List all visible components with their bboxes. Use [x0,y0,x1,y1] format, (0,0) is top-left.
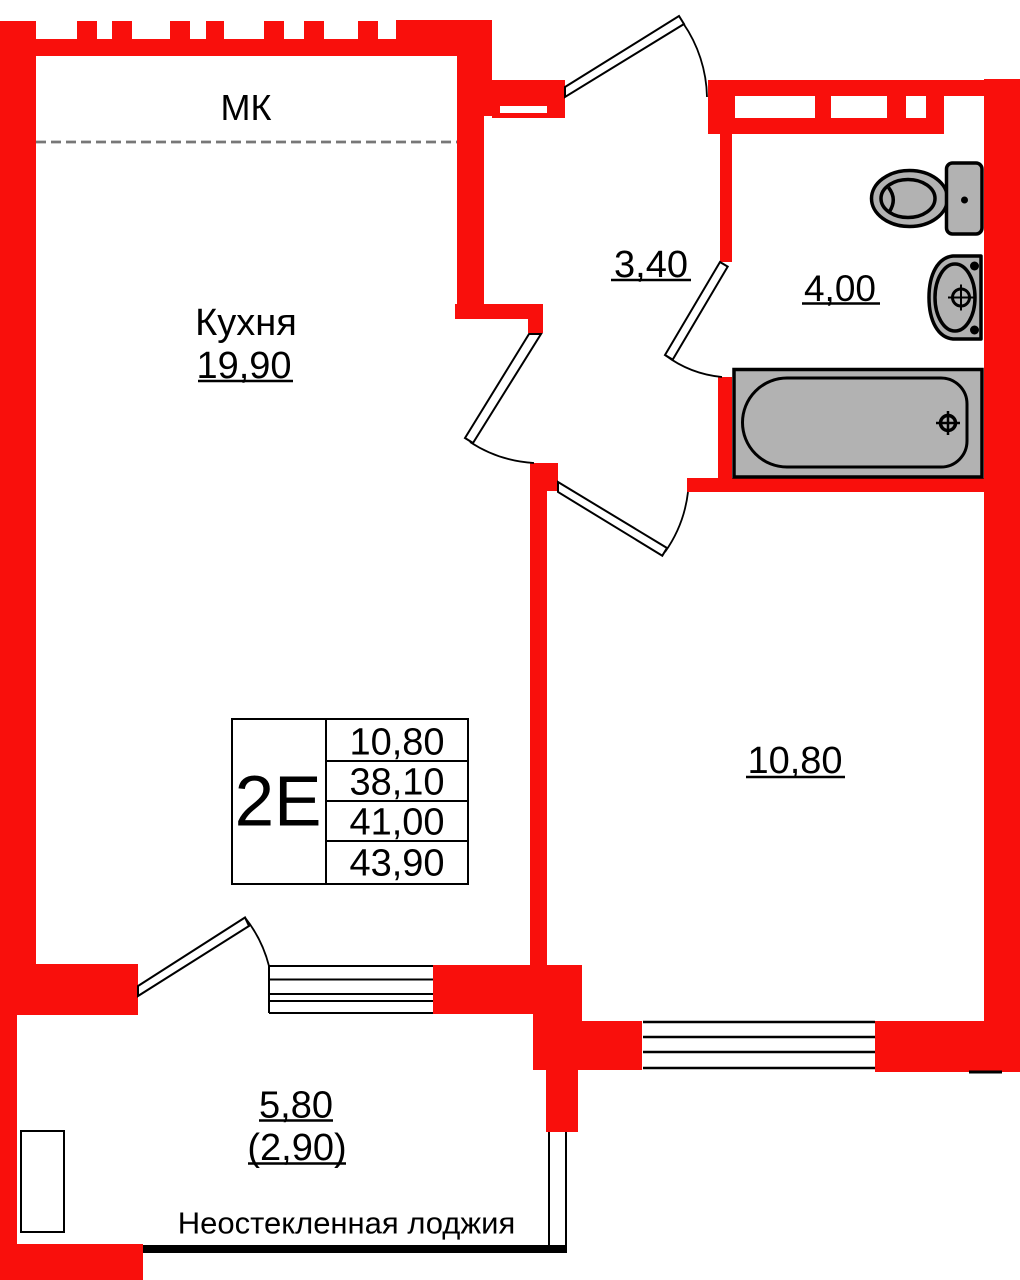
svg-text:10,80: 10,80 [349,722,444,764]
svg-text:2Е: 2Е [235,763,322,842]
svg-text:10,80: 10,80 [747,740,842,782]
svg-text:Кухня: Кухня [195,302,297,344]
svg-text:Неостекленная лоджия: Неостекленная лоджия [178,1206,516,1241]
svg-text:38,10: 38,10 [349,762,444,804]
svg-text:41,00: 41,00 [349,802,444,844]
svg-text:43,90: 43,90 [349,843,444,885]
svg-text:МК: МК [221,87,272,128]
